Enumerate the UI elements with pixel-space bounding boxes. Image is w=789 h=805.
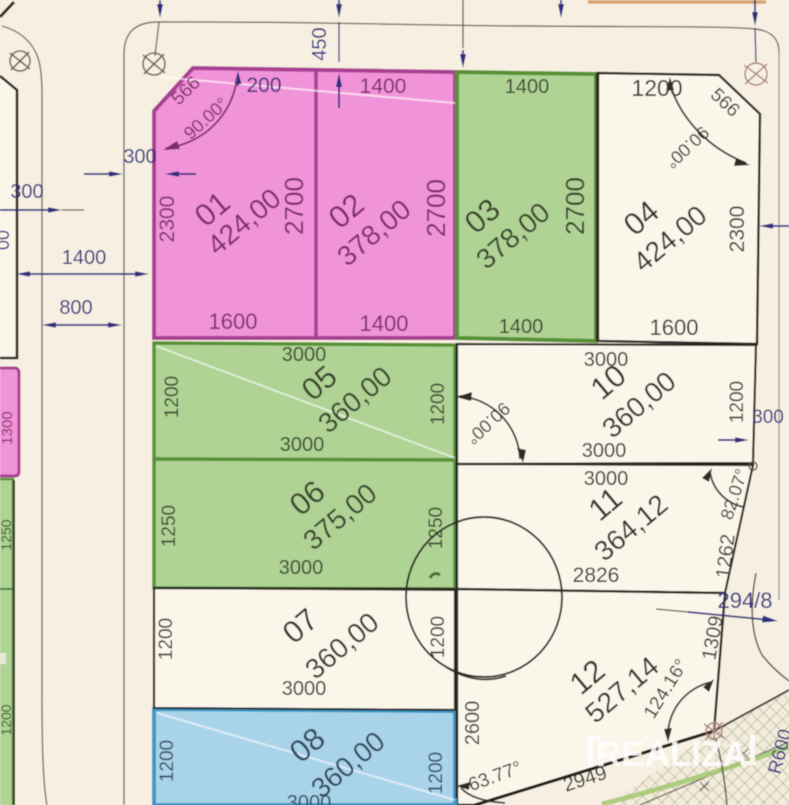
svg-text:00: 00 [0,230,13,250]
svg-text:2826: 2826 [573,564,620,587]
svg-text:1600: 1600 [650,315,699,340]
svg-text:3000: 3000 [280,434,325,456]
svg-text:2300: 2300 [726,206,749,253]
svg-text:1400: 1400 [360,75,407,98]
svg-text:1200: 1200 [631,75,682,101]
svg-text:3000: 3000 [282,678,327,700]
svg-text:1200: 1200 [428,383,449,425]
svg-text:450: 450 [309,27,331,60]
svg-text:300: 300 [10,181,43,203]
svg-text:1250: 1250 [426,507,447,549]
svg-text:300: 300 [123,146,156,168]
svg-text:1200: 1200 [428,616,449,658]
svg-text:294/8: 294/8 [717,588,772,613]
svg-text:1400: 1400 [499,316,544,338]
svg-text:2600: 2600 [462,701,484,746]
svg-text:1200: 1200 [157,740,178,782]
svg-text:3000: 3000 [279,557,324,579]
svg-text:2300: 2300 [156,196,179,243]
svg-text:300: 300 [752,407,784,428]
svg-text:REALIZA: REALIZA [596,735,748,774]
svg-text:3000: 3000 [287,792,332,805]
svg-text:1200: 1200 [426,752,447,794]
svg-text:1200: 1200 [162,376,183,418]
svg-text:2700: 2700 [279,177,309,235]
svg-text:1200: 1200 [156,618,177,660]
svg-text:200: 200 [246,74,281,97]
svg-text:2700: 2700 [560,177,590,235]
svg-text:1300: 1300 [0,411,16,444]
svg-text:1400: 1400 [62,247,107,269]
svg-text:1200: 1200 [0,704,14,735]
svg-text:1400: 1400 [505,76,550,98]
svg-text:1600: 1600 [209,309,258,334]
svg-text:2700: 2700 [421,179,451,237]
svg-text:1250: 1250 [0,519,14,550]
svg-text:1400: 1400 [360,311,409,336]
svg-text:3000: 3000 [582,440,627,462]
svg-text:800: 800 [59,297,92,319]
svg-text:1250: 1250 [159,505,180,547]
svg-text:1200: 1200 [727,381,748,423]
